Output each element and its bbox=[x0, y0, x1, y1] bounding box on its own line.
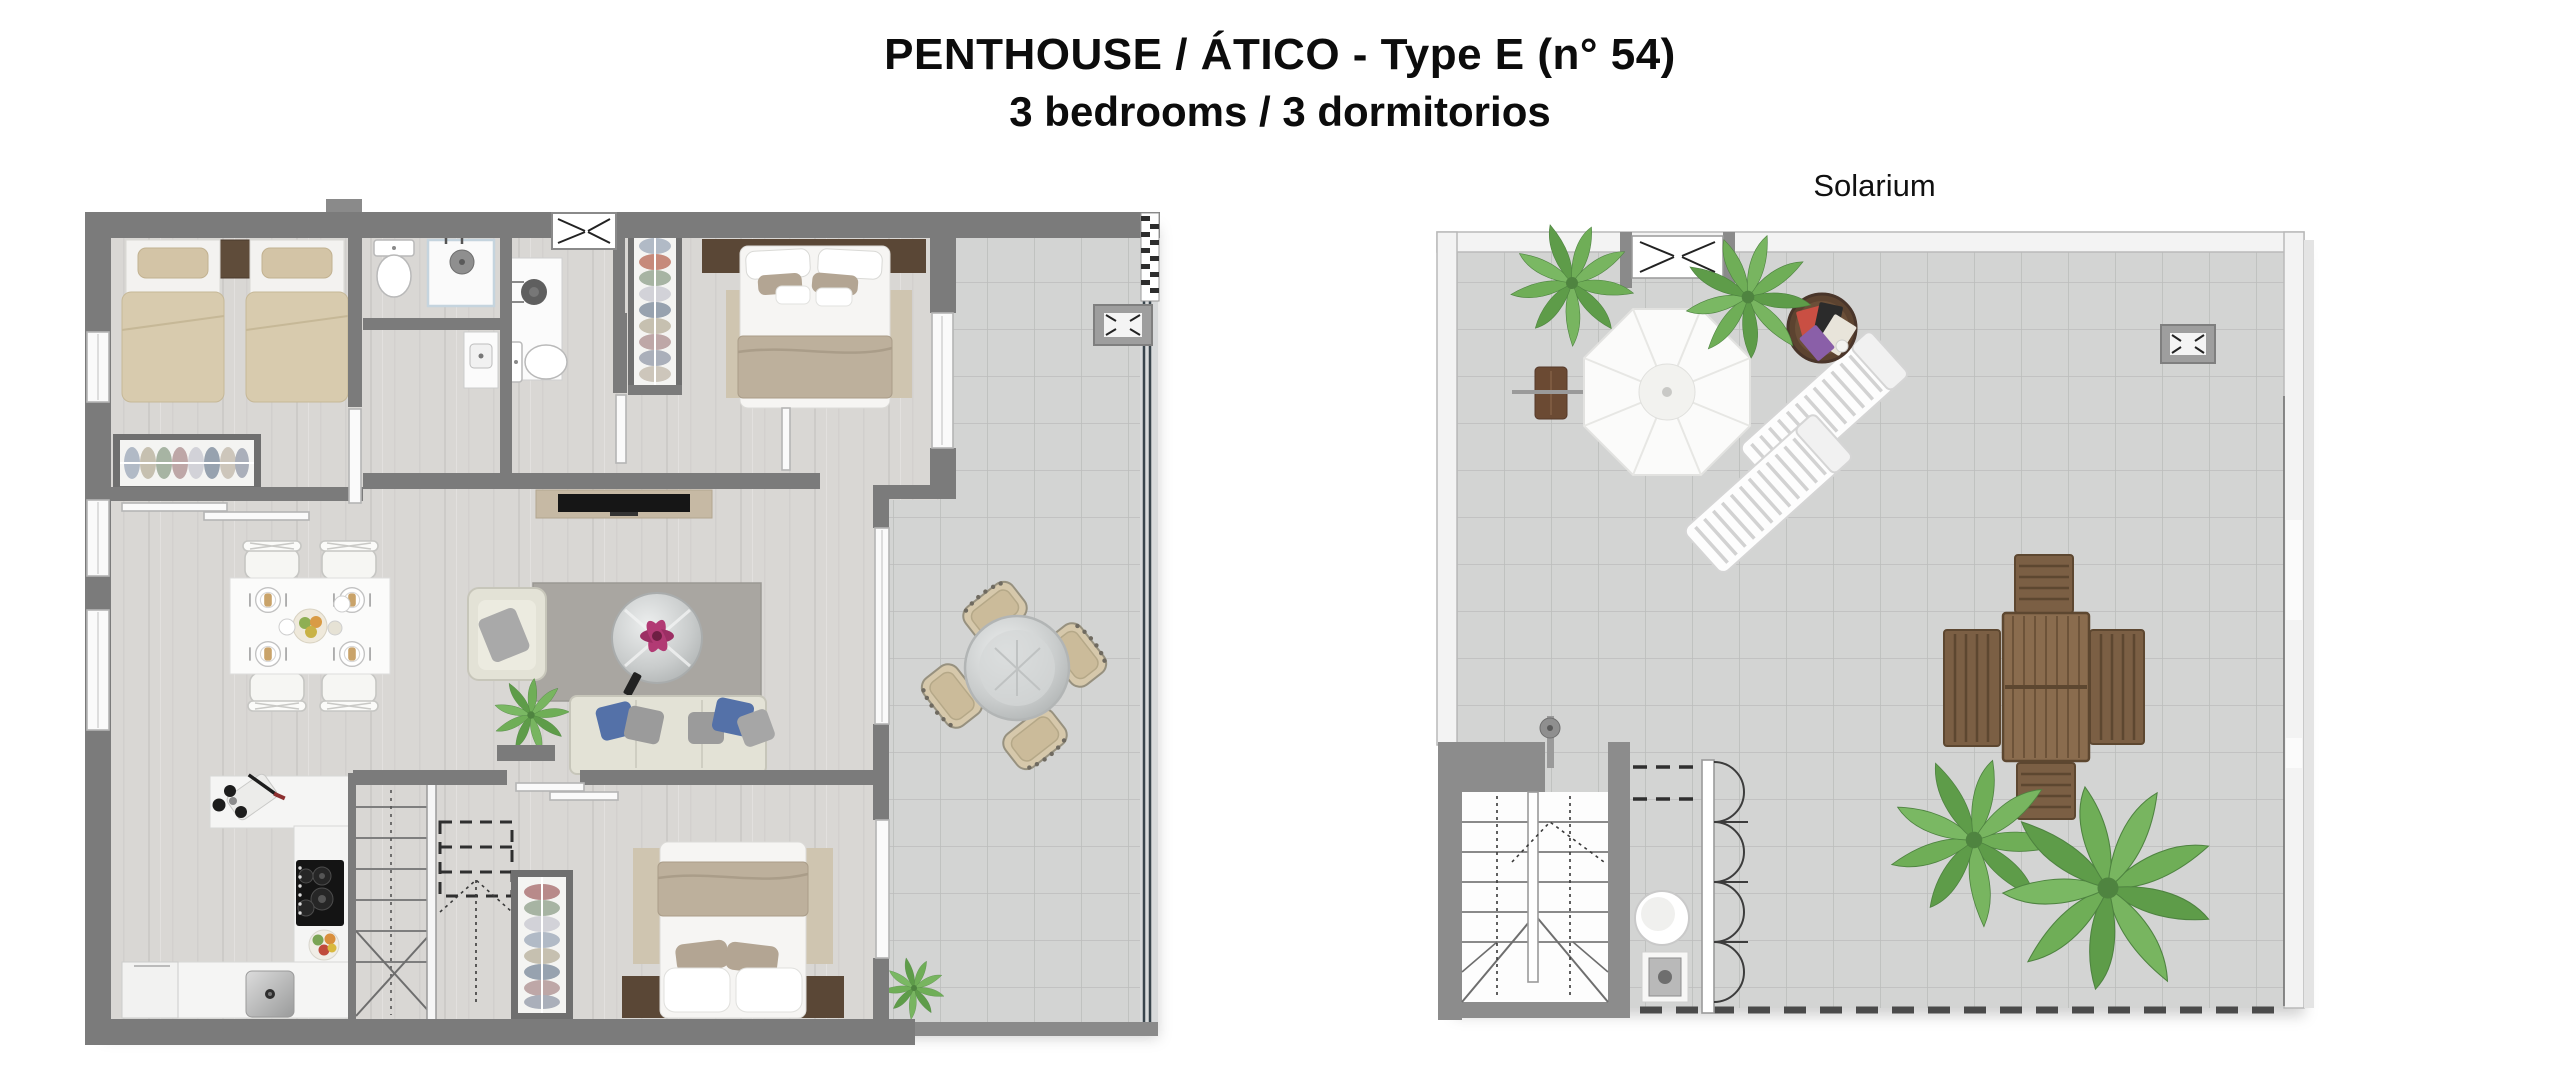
ac-unit-solarium bbox=[2161, 325, 2215, 363]
toilet-2 bbox=[508, 342, 567, 382]
outdoor-chair-right bbox=[2090, 630, 2144, 744]
outdoor-chair-top bbox=[2015, 555, 2073, 613]
terrace-round-table bbox=[965, 616, 1069, 720]
ac-unit-terrace bbox=[1094, 305, 1152, 345]
utility-sink bbox=[1642, 952, 1688, 1002]
bathroom-c bbox=[508, 258, 567, 382]
twin-bed-2 bbox=[246, 240, 348, 402]
hatch-strip bbox=[1141, 213, 1159, 301]
solarium-plan bbox=[1437, 210, 2314, 1025]
floorplans-graphic bbox=[0, 0, 2560, 1077]
cooktop bbox=[296, 860, 344, 926]
skylight-window bbox=[552, 213, 616, 249]
bedroom3-wardrobe bbox=[511, 870, 573, 1020]
sofa bbox=[570, 696, 777, 774]
floorplan-page: PENTHOUSE / ÁTICO - Type E (n° 54) 3 bed… bbox=[0, 0, 2560, 1077]
armchair bbox=[468, 588, 546, 680]
terrace-balustrade bbox=[1140, 238, 1158, 1022]
roof-vent bbox=[326, 199, 362, 214]
stair-handrail bbox=[427, 774, 436, 1020]
fridge bbox=[122, 962, 178, 1018]
twin-room-wardrobe bbox=[113, 434, 261, 492]
twin-bed-1 bbox=[122, 240, 224, 402]
master-wardrobe bbox=[628, 225, 682, 395]
main-floor-plan bbox=[85, 199, 1160, 1045]
kitchen-sink bbox=[246, 971, 294, 1017]
master-bed bbox=[738, 246, 892, 408]
outdoor-table bbox=[2003, 613, 2089, 761]
shower bbox=[428, 234, 494, 306]
tv-unit bbox=[536, 490, 712, 518]
stair-rail bbox=[1528, 792, 1538, 982]
folding-door-track bbox=[1702, 760, 1714, 1013]
outdoor-chair-left bbox=[1944, 630, 2000, 746]
toilet bbox=[374, 240, 414, 297]
